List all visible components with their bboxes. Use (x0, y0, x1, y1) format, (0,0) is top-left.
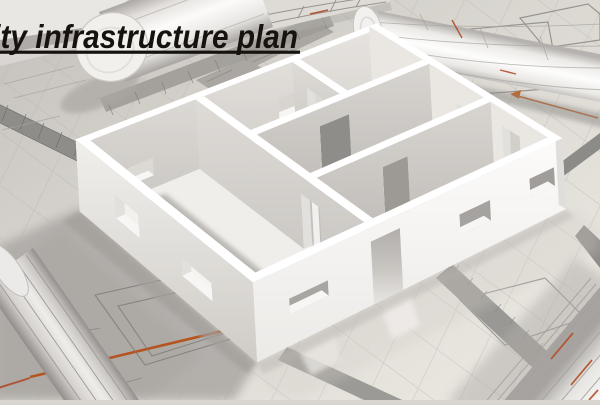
svg-text:city infrastructure plan: city infrastructure plan (0, 19, 298, 56)
